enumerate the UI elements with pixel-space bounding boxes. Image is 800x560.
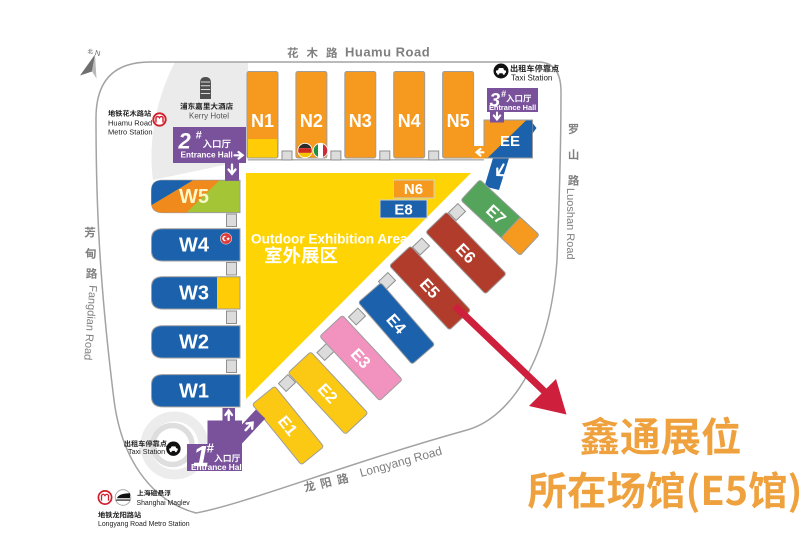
svg-text:Longyang Road Metro Station: Longyang Road Metro Station [98,521,190,528]
svg-text:Entrance Hall: Entrance Hall [181,151,233,160]
svg-text:N1: N1 [251,111,274,131]
svg-text:E8: E8 [394,202,412,219]
svg-text:Luoshan Road: Luoshan Road [564,188,576,260]
svg-text:#: # [207,441,215,456]
svg-text:N3: N3 [349,111,372,131]
svg-text:Taxi Station: Taxi Station [128,447,165,456]
svg-text:W5: W5 [179,186,209,208]
svg-text:N: N [94,48,101,58]
svg-text:Metro Station: Metro Station [108,128,153,137]
svg-text:N5: N5 [447,111,470,131]
svg-text:Kerry Hotel: Kerry Hotel [189,112,229,121]
svg-text:W2: W2 [179,332,209,354]
svg-text:Shanghai Maglev: Shanghai Maglev [137,500,191,507]
svg-text:Entrance Hall: Entrance Hall [489,103,536,112]
svg-text:#: # [501,89,506,99]
svg-text:N6: N6 [404,181,423,198]
svg-text:W1: W1 [179,381,209,403]
svg-text:W4: W4 [179,235,210,257]
svg-text:Fangdian Road: Fangdian Road [81,285,98,361]
svg-text:Taxi Station: Taxi Station [511,74,552,83]
svg-text:Entrance Hall: Entrance Hall [191,462,244,472]
svg-text:W3: W3 [179,283,209,305]
svg-text:Huamu Road: Huamu Road [345,45,430,60]
svg-text:Huamu Road: Huamu Road [108,119,152,128]
svg-text:#: # [196,130,203,142]
svg-text:N2: N2 [300,111,323,131]
svg-text:EE: EE [500,133,520,150]
svg-text:Outdoor Exhibition Area: Outdoor Exhibition Area [251,232,408,247]
svg-text:N4: N4 [398,111,421,131]
